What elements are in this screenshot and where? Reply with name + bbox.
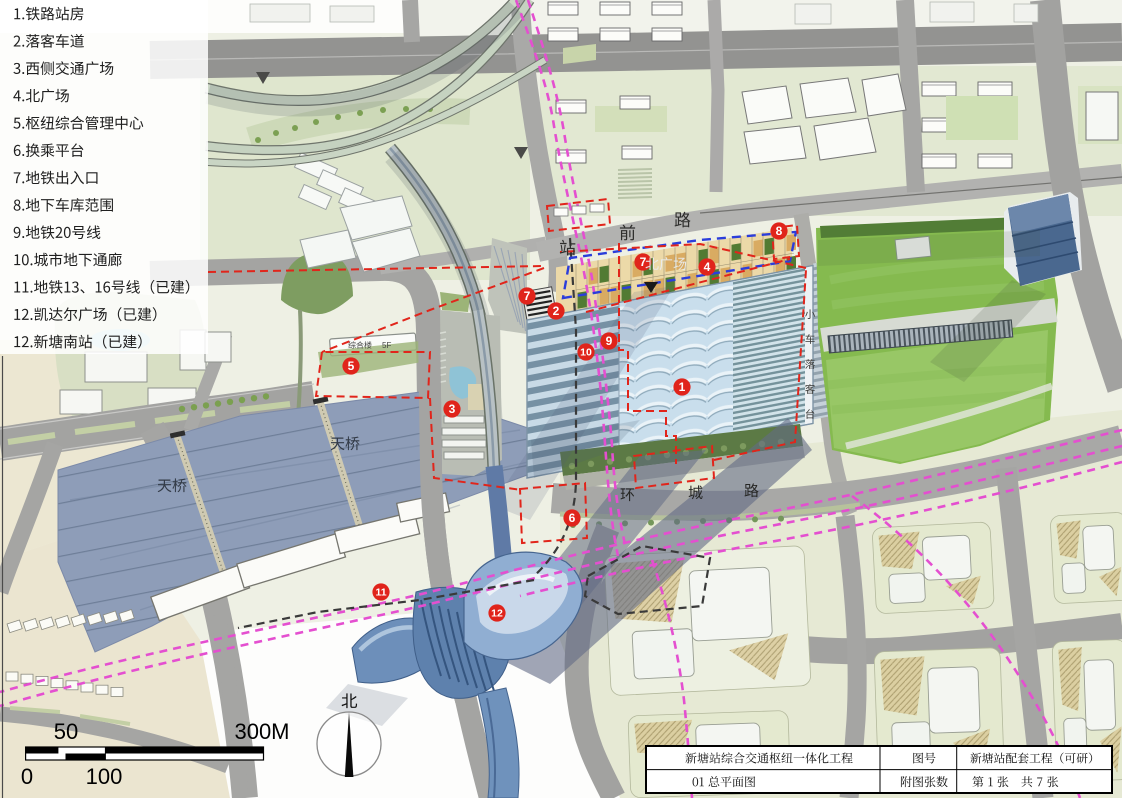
svg-text:5F: 5F (382, 341, 391, 350)
svg-text:10: 10 (580, 347, 592, 359)
svg-text:2: 2 (553, 304, 560, 318)
svg-text:3: 3 (449, 402, 456, 416)
svg-text:100: 100 (86, 764, 123, 789)
svg-text:50: 50 (54, 719, 78, 744)
svg-text:7: 7 (524, 289, 531, 303)
svg-text:4: 4 (704, 260, 711, 274)
svg-text:8: 8 (776, 224, 783, 238)
svg-text:0: 0 (21, 764, 33, 789)
svg-text:300M: 300M (234, 719, 289, 744)
svg-text:7: 7 (640, 255, 647, 269)
svg-text:6: 6 (569, 511, 576, 525)
svg-text:1: 1 (679, 380, 686, 394)
svg-text:5: 5 (348, 359, 355, 373)
svg-text:12: 12 (491, 608, 503, 620)
svg-text:9: 9 (606, 334, 613, 348)
svg-text:11: 11 (375, 587, 386, 599)
